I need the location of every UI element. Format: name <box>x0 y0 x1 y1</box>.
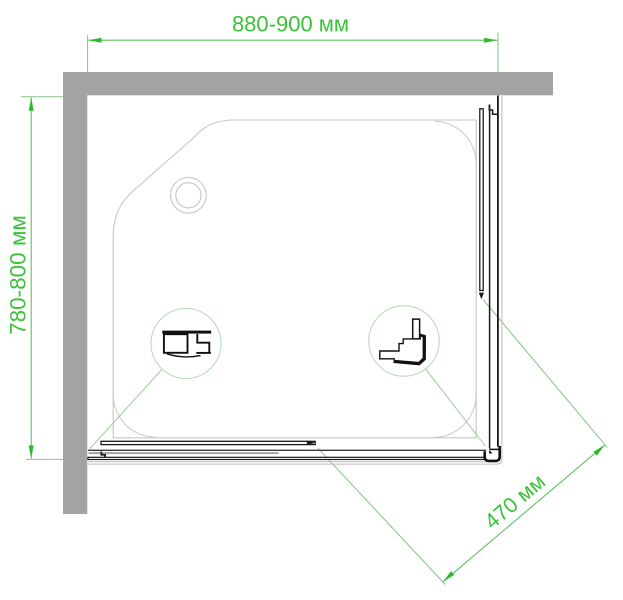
svg-text:470 мм: 470 мм <box>480 469 550 533</box>
svg-text:880-900 мм: 880-900 мм <box>232 12 349 37</box>
svg-text:780-800 мм: 780-800 мм <box>5 215 30 335</box>
